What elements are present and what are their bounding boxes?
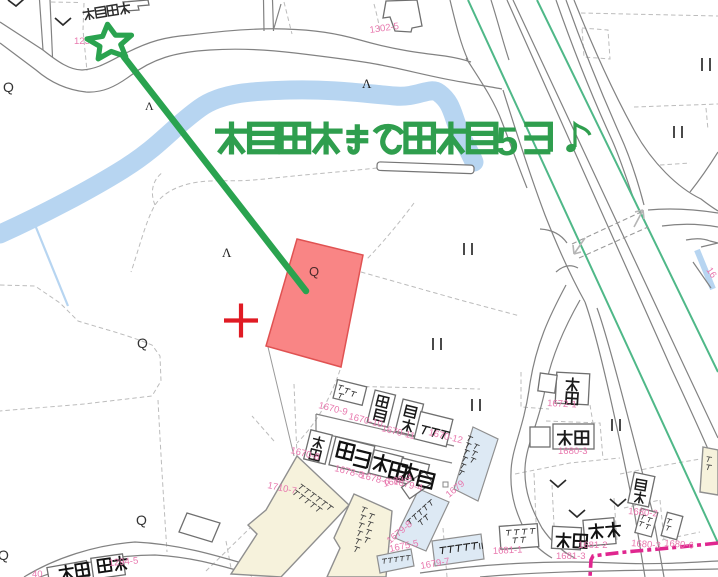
svg-text:1681-2: 1681-2 [578,540,608,551]
svg-text:Q: Q [136,512,147,528]
svg-text:1680-3: 1680-3 [558,446,588,457]
svg-text:Q: Q [309,264,319,279]
svg-text:40: 40 [32,569,43,577]
svg-text:Λ: Λ [362,76,372,91]
svg-text:1672-1: 1672-1 [547,398,577,411]
svg-text:Λ: Λ [222,245,232,260]
svg-text:1681-1: 1681-1 [493,544,523,557]
svg-text:Q: Q [3,79,14,95]
svg-text:1681-3: 1681-3 [556,551,586,562]
svg-text:Q: Q [137,335,148,351]
svg-text:Q: Q [0,547,9,563]
svg-text:Λ: Λ [145,99,154,113]
svg-text:5: 5 [496,120,518,164]
